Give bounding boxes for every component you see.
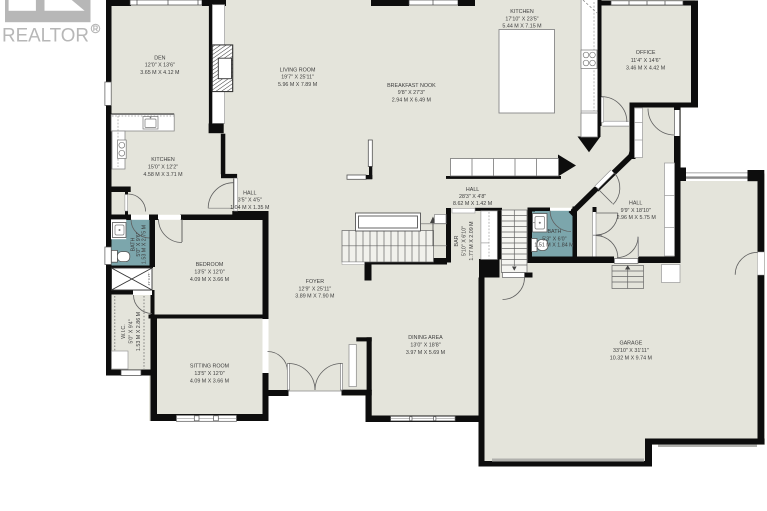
svg-text:BREAKFAST NOOK: BREAKFAST NOOK	[387, 83, 436, 89]
svg-text:4.09 M X 3.66 M: 4.09 M X 3.66 M	[190, 277, 230, 283]
svg-text:1.53 M X 2.75 M: 1.53 M X 2.75 M	[141, 224, 147, 264]
svg-text:3.65 M X 4.12 M: 3.65 M X 4.12 M	[140, 70, 180, 76]
svg-text:2.94 M X 6.49 M: 2.94 M X 6.49 M	[392, 98, 432, 104]
svg-text:5'10" X 6'10": 5'10" X 6'10"	[462, 226, 468, 256]
svg-text:REALTOR: REALTOR	[2, 25, 89, 47]
svg-text:17'10" X 23'5": 17'10" X 23'5"	[505, 17, 538, 23]
svg-text:8.62 M X 1.42 M: 8.62 M X 1.42 M	[453, 201, 493, 207]
svg-text:3.97 M X 5.69 M: 3.97 M X 5.69 M	[406, 350, 446, 356]
svg-text:4.09 M X 3.66 M: 4.09 M X 3.66 M	[190, 379, 230, 385]
svg-text:W.I.C.: W.I.C.	[121, 324, 127, 339]
svg-text:13'0" X 18'8": 13'0" X 18'8"	[410, 342, 440, 348]
svg-text:5'3" X 6'0": 5'3" X 6'0"	[542, 236, 566, 242]
svg-text:5.96 M X 7.89 M: 5.96 M X 7.89 M	[278, 82, 318, 88]
svg-text:3'5" X 4'5": 3'5" X 4'5"	[238, 198, 262, 204]
svg-text:10.32 M X 9.74 M: 10.32 M X 9.74 M	[610, 355, 653, 361]
svg-text:28'3" X 4'8": 28'3" X 4'8"	[459, 194, 486, 200]
svg-text:3.89 M X 7.90 M: 3.89 M X 7.90 M	[295, 294, 335, 300]
svg-text:BEDROOM: BEDROOM	[196, 262, 224, 268]
svg-text:SITTING ROOM: SITTING ROOM	[190, 364, 230, 370]
svg-text:KITCHEN: KITCHEN	[510, 9, 534, 15]
svg-text:5'0" X 9'4": 5'0" X 9'4"	[129, 319, 135, 343]
svg-text:9'8" X 27'3": 9'8" X 27'3"	[398, 90, 425, 96]
svg-text:BATH: BATH	[547, 229, 561, 235]
svg-text:15'0" X 12'2": 15'0" X 12'2"	[148, 165, 178, 171]
svg-text:1.53 M X 2.86 M: 1.53 M X 2.86 M	[136, 311, 142, 351]
svg-text:KITCHEN: KITCHEN	[151, 157, 175, 163]
svg-text:DINING AREA: DINING AREA	[408, 335, 443, 341]
svg-text:OFFICE: OFFICE	[636, 50, 656, 56]
svg-text:3.46 M X 4.42 M: 3.46 M X 4.42 M	[626, 65, 666, 71]
svg-text:9'9" X 18'10": 9'9" X 18'10"	[621, 208, 651, 214]
svg-text:2.96 M X 5.75 M: 2.96 M X 5.75 M	[617, 215, 657, 221]
svg-text:13'5" X 12'0": 13'5" X 12'0"	[194, 371, 224, 377]
svg-text:DEN: DEN	[154, 55, 165, 61]
svg-text:12'9" X 25'11": 12'9" X 25'11"	[299, 286, 332, 292]
svg-text:11'4" X 14'6": 11'4" X 14'6"	[631, 58, 661, 64]
svg-text:4.58 M X 3.71 M: 4.58 M X 3.71 M	[143, 172, 183, 178]
svg-text:4'1" X 2'5": 4'1" X 2'5"	[147, 273, 151, 286]
svg-text:1.04 M X 1.35 M: 1.04 M X 1.35 M	[230, 205, 270, 211]
svg-text:5.44 M X 7.15 M: 5.44 M X 7.15 M	[502, 24, 542, 30]
svg-text:HALL: HALL	[629, 200, 642, 206]
svg-text:FOYER: FOYER	[306, 279, 325, 285]
svg-text:19'7" X 25'11": 19'7" X 25'11"	[281, 75, 314, 81]
svg-text:33'10" X 31'11": 33'10" X 31'11"	[613, 348, 649, 354]
svg-text:13'5" X 12'0": 13'5" X 12'0"	[194, 270, 224, 276]
svg-text:GARAGE: GARAGE	[619, 340, 642, 346]
svg-text:LIVING ROOM: LIVING ROOM	[280, 67, 316, 73]
svg-text:BAR: BAR	[454, 235, 460, 246]
svg-text:1.77 M X 2.09 M: 1.77 M X 2.09 M	[469, 221, 475, 261]
svg-text:HALL: HALL	[466, 187, 479, 193]
svg-text:12'0" X 13'6": 12'0" X 13'6"	[145, 63, 175, 69]
svg-text:1.51 M X 1.84 M: 1.51 M X 1.84 M	[534, 243, 574, 249]
svg-text:HALL: HALL	[243, 190, 256, 196]
